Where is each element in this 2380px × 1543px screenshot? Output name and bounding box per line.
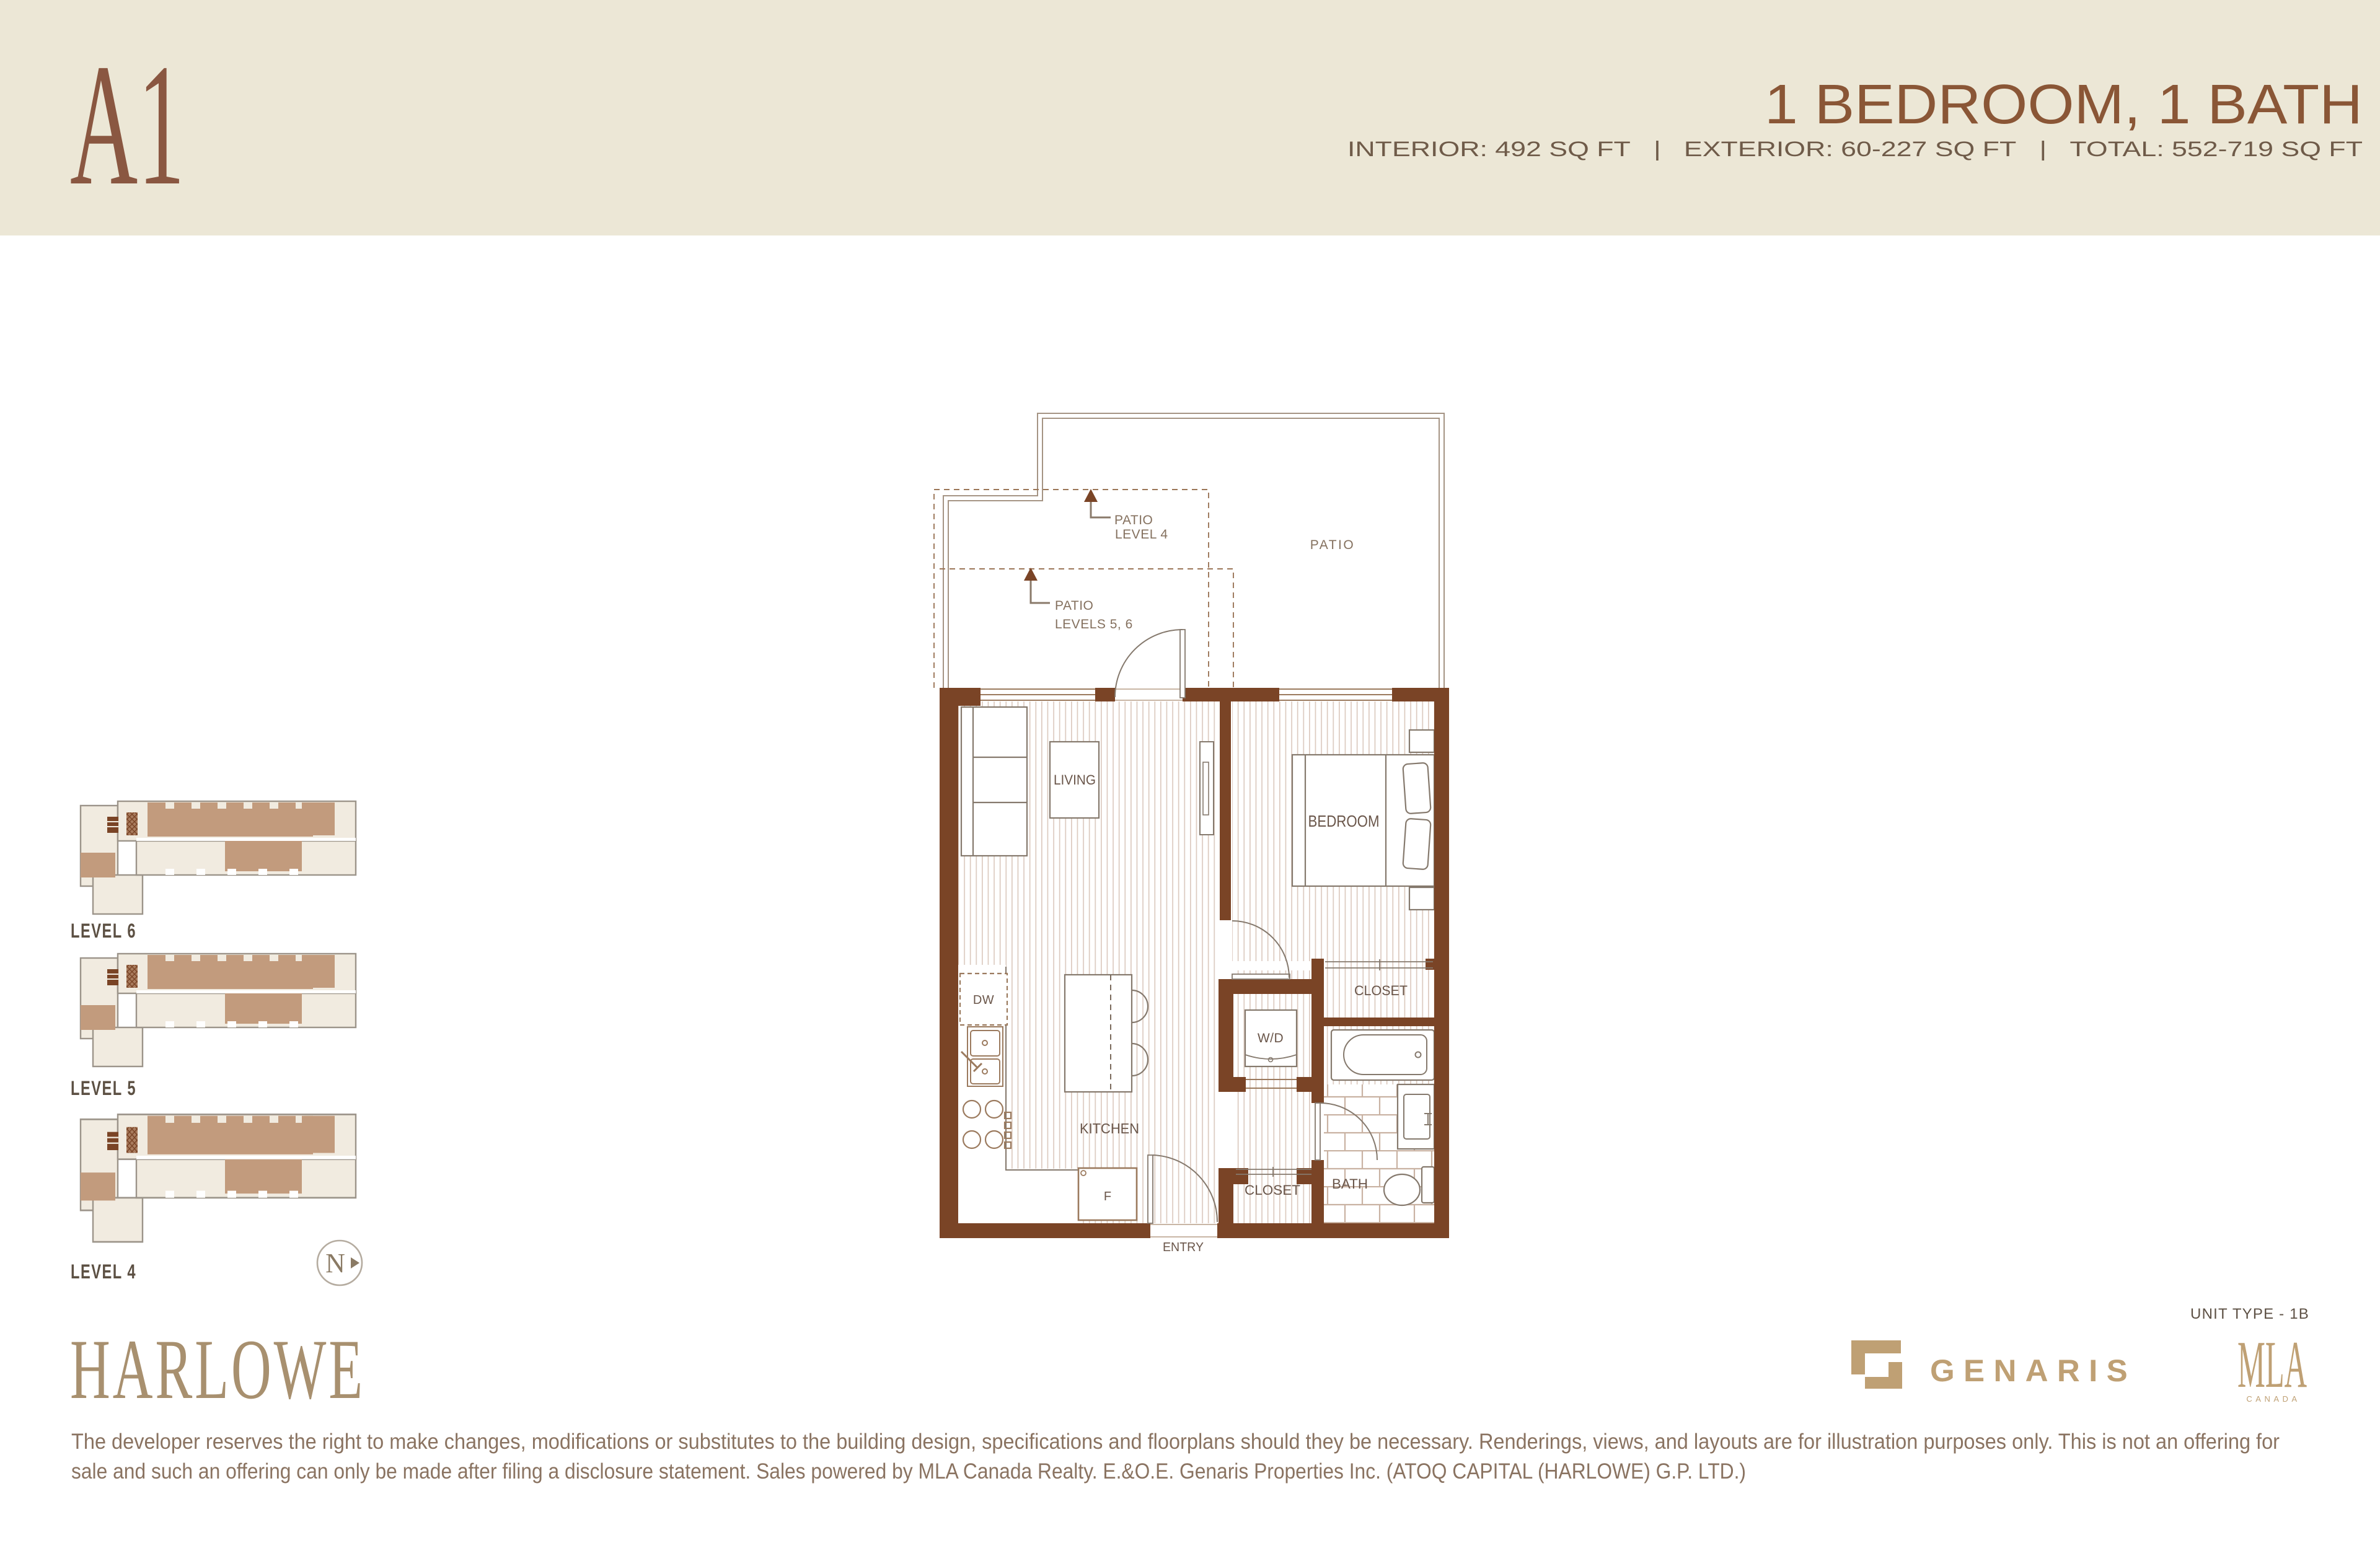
svg-text:PATIO: PATIO (1114, 513, 1153, 527)
svg-text:W/D: W/D (1258, 1031, 1284, 1045)
svg-text:F: F (1104, 1190, 1111, 1203)
svg-text:ENTRY: ENTRY (1163, 1241, 1204, 1254)
svg-text:PATIO: PATIO (1310, 538, 1355, 552)
svg-text:CANADA: CANADA (2246, 1394, 2300, 1404)
svg-text:PATIO: PATIO (1055, 599, 1093, 613)
svg-text:BATH: BATH (1332, 1176, 1368, 1192)
svg-text:BEDROOM: BEDROOM (1308, 812, 1380, 830)
svg-text:sale and such an offering can: sale and such an offering can only be ma… (71, 1459, 1746, 1484)
svg-text:HARLOWE: HARLOWE (70, 1322, 365, 1417)
svg-text:CLOSET: CLOSET (1354, 983, 1408, 998)
svg-text:LIVING: LIVING (1054, 772, 1096, 788)
svg-text:LEVEL 6: LEVEL 6 (71, 920, 136, 942)
svg-text:UNIT TYPE - 1B: UNIT TYPE - 1B (2190, 1306, 2309, 1322)
svg-text:A1: A1 (70, 28, 185, 221)
svg-text:CLOSET: CLOSET (1245, 1182, 1300, 1198)
svg-text:LEVEL 4: LEVEL 4 (1115, 527, 1168, 542)
svg-text:INTERIOR: 492 SQ FT | EXTE: INTERIOR: 492 SQ FT | EXTERIOR: 60-227 S… (1347, 138, 2363, 161)
svg-text:1 BEDROOM, 1 BATH: 1 BEDROOM, 1 BATH (1765, 74, 2363, 136)
svg-text:The developer reserves the rig: The developer reserves the right to make… (71, 1430, 2280, 1454)
svg-text:N: N (325, 1248, 345, 1278)
svg-text:LEVEL 5: LEVEL 5 (71, 1077, 136, 1099)
svg-text:MLA: MLA (2237, 1328, 2307, 1402)
svg-text:GENARIS: GENARIS (1930, 1353, 2136, 1388)
svg-text:KITCHEN: KITCHEN (1080, 1120, 1139, 1136)
svg-text:LEVEL 4: LEVEL 4 (71, 1260, 136, 1283)
svg-text:LEVELS 5, 6: LEVELS 5, 6 (1055, 617, 1133, 631)
svg-text:DW: DW (973, 993, 994, 1007)
